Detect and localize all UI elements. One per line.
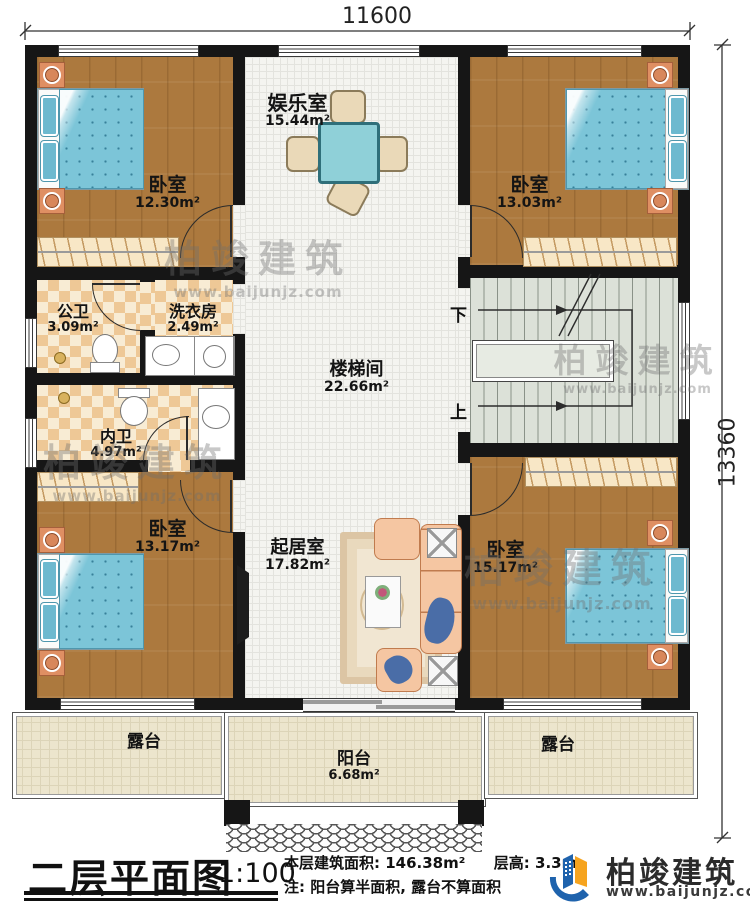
room-area: 12.30m² <box>125 196 210 212</box>
chair <box>286 136 320 172</box>
floorplan-second-floor: 11600 13360 <box>0 0 750 913</box>
door-leaf <box>230 205 232 257</box>
room-name: 公卫 <box>42 303 104 321</box>
room-label-living: 起居室 17.82m² <box>255 538 340 574</box>
room-area: 6.68m² <box>318 769 390 784</box>
door-leaf <box>470 463 472 515</box>
room-label-balcony: 阳台 6.68m² <box>318 750 390 784</box>
toilet <box>120 396 148 426</box>
floor-drain <box>58 392 70 404</box>
dimension-top: 11600 <box>332 4 422 29</box>
wardrobe <box>523 237 677 267</box>
bed-duvet <box>59 89 144 189</box>
room-label-bedroom-bl: 卧室 13.17m² <box>125 519 210 556</box>
nightstand <box>39 527 65 553</box>
drawing-title: 二层平面图 <box>28 848 233 904</box>
room-area: 15.44m² <box>240 114 355 130</box>
window <box>58 45 199 57</box>
pillow <box>669 141 686 181</box>
pillow <box>669 597 686 635</box>
room-name: 娱乐室 <box>240 92 355 114</box>
washer-drum <box>203 345 226 368</box>
sink <box>202 405 230 429</box>
coffee-table <box>365 576 401 628</box>
door-leaf <box>92 283 140 285</box>
area-note: 注: 阳台算半面积, 露台不算面积 <box>284 876 501 897</box>
door-opening <box>458 463 470 515</box>
balcony-post <box>224 800 250 826</box>
door-leaf <box>470 205 472 257</box>
room-name: 露台 <box>108 733 180 752</box>
brand-logo-icon <box>544 846 600 902</box>
sink <box>152 344 180 366</box>
pillow <box>41 603 58 641</box>
terrace-left <box>12 712 226 799</box>
bed <box>37 553 144 650</box>
armchair <box>374 518 420 560</box>
sliding-door-leaf <box>303 700 382 704</box>
room-area: 17.82m² <box>255 558 340 574</box>
room-area: 13.03m² <box>487 196 572 212</box>
dimension-right: 13360 <box>716 393 741 513</box>
door-leaf <box>230 480 232 532</box>
game-table <box>318 122 380 184</box>
door-opening <box>458 205 470 257</box>
window <box>278 45 420 57</box>
window <box>25 418 37 468</box>
room-label-laundry: 洗衣房 2.49m² <box>153 303 233 335</box>
room-name: 卧室 <box>125 175 210 196</box>
room-label-inner-bath: 内卫 4.97m² <box>82 428 150 460</box>
room-name: 洗衣房 <box>153 303 233 321</box>
stair-up-label: 上 <box>450 398 467 423</box>
pillow <box>669 96 686 136</box>
window <box>507 45 642 57</box>
sliding-door-leaf <box>376 705 455 709</box>
room-label-public-bath: 公卫 3.09m² <box>42 303 104 335</box>
balcony-post <box>458 800 484 826</box>
window <box>60 698 195 710</box>
wardrobe <box>37 237 179 267</box>
door-opening <box>233 480 245 532</box>
room-name: 内卫 <box>82 428 150 446</box>
room-label-bedroom-br: 卧室 15.17m² <box>463 540 548 577</box>
side-table <box>428 656 458 686</box>
door-opening <box>233 284 245 334</box>
pillow <box>41 141 58 181</box>
floor-area-info: 本层建筑面积: 146.38m² 层高: 3.3m <box>284 852 577 873</box>
floor-drain <box>54 352 66 364</box>
title-underline <box>24 898 278 901</box>
bed <box>565 548 689 644</box>
flower-vase <box>375 585 390 600</box>
bed-duvet <box>59 554 144 649</box>
bed-duvet <box>566 549 667 643</box>
room-label-bedroom-tr: 卧室 13.03m² <box>487 175 572 212</box>
wardrobe <box>37 472 139 502</box>
room-area: 4.97m² <box>82 446 150 461</box>
room-name: 楼梯间 <box>314 360 399 380</box>
built-area-value: 本层建筑面积: 146.38m² <box>284 854 465 872</box>
roof-tiles <box>226 824 482 852</box>
door-opening <box>148 460 190 472</box>
stair-landing <box>472 340 614 382</box>
room-name: 卧室 <box>487 175 572 196</box>
nightstand <box>647 520 673 546</box>
room-area: 15.17m² <box>463 561 548 577</box>
nightstand <box>39 188 65 214</box>
pillow <box>41 560 58 598</box>
washing-machine <box>194 336 234 376</box>
pillow <box>669 555 686 593</box>
toilet-tank <box>90 362 120 373</box>
side-table <box>427 528 457 558</box>
room-label-terrace-right: 露台 <box>522 736 594 755</box>
room-label-entertainment: 娱乐室 15.44m² <box>240 92 355 130</box>
nightstand <box>647 644 673 670</box>
brand-website: www.baijunjz.com <box>606 884 750 900</box>
room-area: 2.49m² <box>153 321 233 336</box>
room-name: 卧室 <box>125 519 210 540</box>
room-name: 起居室 <box>255 538 340 558</box>
window <box>25 318 37 368</box>
window <box>503 698 642 710</box>
nightstand <box>39 650 65 676</box>
stair-down-label: 下 <box>450 301 467 326</box>
pillow <box>41 96 58 136</box>
room-name: 卧室 <box>463 540 548 561</box>
bed-duvet <box>566 89 667 189</box>
sliding-door-balcony <box>303 698 455 712</box>
room-area: 13.17m² <box>125 540 210 556</box>
brand-logo: 柏竣建筑 www.baijunjz.com <box>544 846 744 906</box>
bed <box>565 88 689 190</box>
room-name: 阳台 <box>318 750 390 769</box>
nightstand <box>39 62 65 88</box>
title-underline <box>24 891 278 895</box>
window <box>678 302 690 420</box>
tv <box>237 565 249 645</box>
room-area: 3.09m² <box>42 321 104 336</box>
nightstand <box>647 62 673 88</box>
door-opening <box>233 205 245 257</box>
room-label-bedroom-tl: 卧室 12.30m² <box>125 175 210 212</box>
room-name: 露台 <box>522 736 594 755</box>
room-label-stairwell: 楼梯间 22.66m² <box>314 360 399 396</box>
terrace-right <box>484 712 698 799</box>
door-leaf <box>186 416 188 460</box>
wardrobe <box>525 457 677 487</box>
room-area: 22.66m² <box>314 380 399 396</box>
nightstand <box>647 188 673 214</box>
room-label-terrace-left: 露台 <box>108 733 180 752</box>
